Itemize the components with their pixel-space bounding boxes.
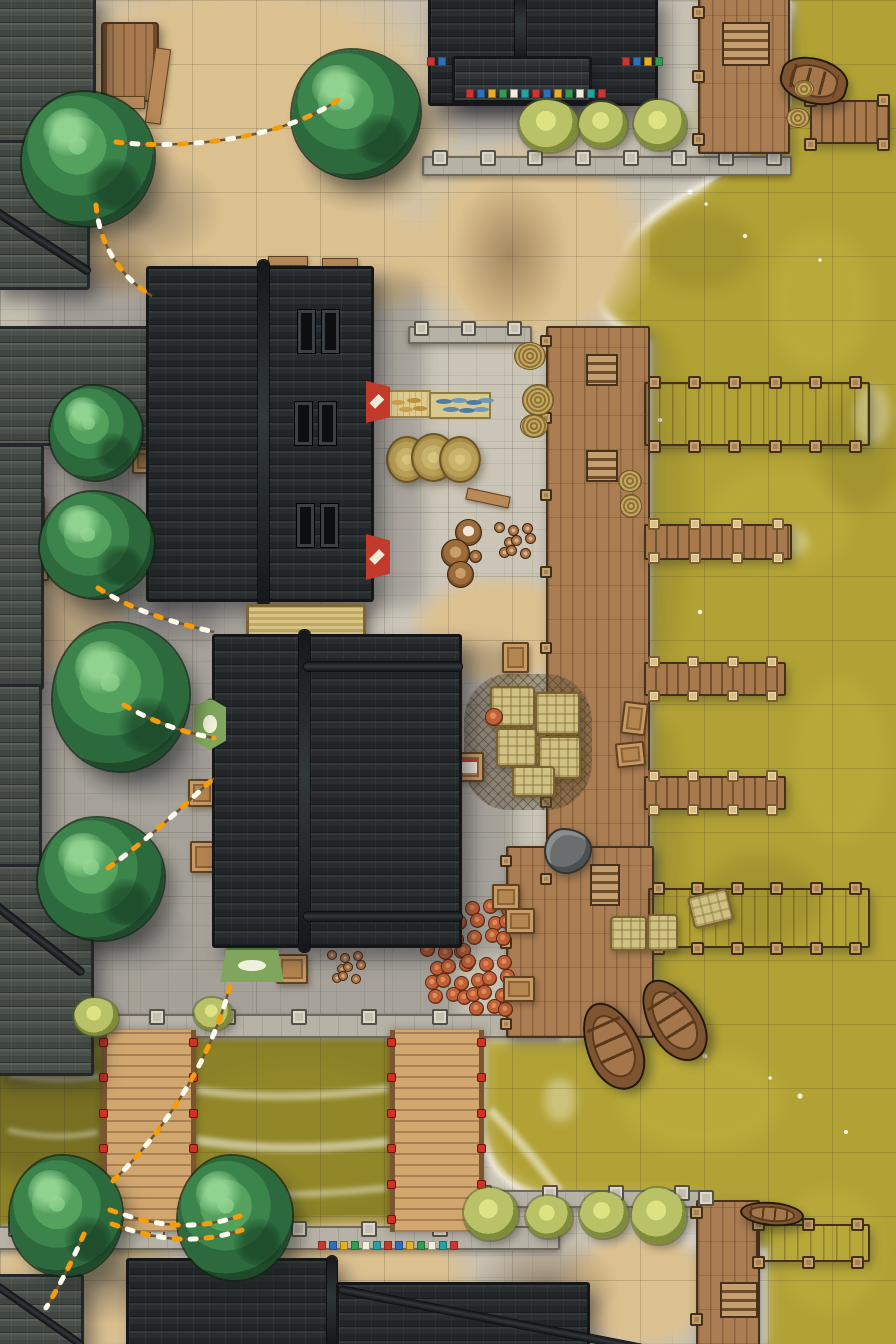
bush (519, 100, 579, 152)
tree (22, 92, 154, 226)
post (727, 804, 739, 816)
flag (587, 89, 595, 98)
post (802, 1256, 815, 1269)
hay-bale (439, 436, 481, 483)
post (766, 656, 778, 668)
pottery (423, 944, 467, 1010)
post (671, 150, 687, 166)
crate (502, 642, 529, 673)
post (770, 882, 783, 895)
flag (521, 89, 529, 98)
dock-posts (804, 138, 890, 151)
flag (598, 89, 606, 98)
red-awning (366, 381, 390, 423)
post (648, 804, 660, 816)
post (802, 1218, 815, 1231)
log (338, 971, 348, 981)
flag (554, 89, 562, 98)
post (387, 1109, 396, 1118)
flag (427, 57, 435, 66)
post (769, 376, 782, 389)
festival-flags (622, 56, 666, 66)
post (810, 942, 823, 955)
clay-pot (485, 708, 503, 726)
wood-plank (268, 256, 308, 266)
roof-hatch (322, 310, 339, 353)
flag (395, 1241, 403, 1250)
dock-stairs (586, 354, 618, 386)
log (520, 548, 531, 559)
post (692, 6, 705, 19)
roof-ridge (304, 662, 462, 671)
post (527, 150, 543, 166)
battle-map (0, 0, 896, 1344)
flag (406, 1241, 414, 1250)
post (688, 440, 701, 453)
post (291, 1221, 307, 1237)
bridge-posts (387, 1038, 396, 1224)
post (387, 1215, 396, 1224)
post (480, 150, 496, 166)
dock-stairs (590, 864, 620, 906)
flag (351, 1241, 359, 1250)
goods-bale (647, 914, 678, 951)
dock-posts (648, 440, 862, 453)
pot (498, 1002, 513, 1017)
post (477, 1144, 486, 1153)
pot (461, 954, 476, 969)
roof-hatch (298, 310, 315, 353)
post (361, 1221, 377, 1237)
post (414, 321, 429, 336)
dock-posts (690, 1206, 703, 1326)
flag (532, 89, 540, 98)
post (189, 1038, 198, 1047)
flag (438, 57, 446, 66)
stone-post (698, 1190, 714, 1206)
flag (362, 1241, 370, 1250)
post (189, 1144, 198, 1153)
dock-posts (648, 804, 778, 816)
dock-posts (692, 6, 705, 146)
post (652, 882, 665, 895)
flag (644, 57, 652, 66)
boardwalk (546, 326, 650, 894)
post (648, 656, 660, 668)
flag (488, 89, 496, 98)
pot (441, 959, 456, 974)
flag (477, 89, 485, 98)
post (477, 1109, 486, 1118)
roof-hatch (297, 504, 314, 547)
bush (579, 102, 627, 148)
flag (340, 1241, 348, 1250)
post (849, 882, 862, 895)
green-awning (194, 698, 226, 750)
pier (644, 382, 870, 446)
bush (634, 100, 686, 150)
log (494, 522, 505, 533)
post (687, 690, 699, 702)
festival-flags (318, 1240, 470, 1251)
post (387, 1073, 396, 1082)
post (770, 942, 783, 955)
post (687, 770, 699, 782)
warehouse-roof (212, 634, 462, 948)
flag (499, 89, 507, 98)
post (728, 440, 741, 453)
log (351, 974, 361, 984)
roof-ridge (258, 260, 269, 606)
tree (178, 1156, 292, 1280)
post (648, 440, 661, 453)
post (687, 656, 699, 668)
flag (510, 89, 518, 98)
log-pile (330, 952, 366, 988)
barrel (469, 550, 482, 563)
roof-ridge (299, 630, 310, 952)
log (506, 545, 517, 556)
post (849, 376, 862, 389)
pot (479, 957, 494, 972)
log-pile (497, 524, 537, 564)
post (189, 1073, 198, 1082)
rope-coil (786, 108, 810, 128)
flag (439, 1241, 447, 1250)
rope-pile (522, 384, 554, 416)
goods-bale (512, 766, 555, 797)
post (477, 1038, 486, 1047)
tree (40, 492, 154, 598)
post (149, 1009, 165, 1025)
building-roof (0, 684, 42, 870)
bush (526, 1196, 572, 1238)
post (731, 518, 743, 530)
post (752, 1256, 765, 1269)
post (432, 1009, 448, 1025)
rope-coil (794, 80, 814, 98)
flag (373, 1241, 381, 1250)
crate (505, 908, 535, 934)
post (877, 138, 890, 151)
post (849, 440, 862, 453)
tree (53, 623, 189, 771)
building-roof (0, 444, 44, 690)
flag (543, 89, 551, 98)
festival-flags (466, 88, 612, 99)
crate (503, 976, 535, 1002)
post (387, 1144, 396, 1153)
log (525, 533, 536, 544)
flag (384, 1241, 392, 1250)
post (809, 440, 822, 453)
mooring-posts (414, 321, 522, 336)
post (575, 150, 591, 166)
post (849, 942, 862, 955)
pot (482, 971, 497, 986)
flag (633, 57, 641, 66)
dock-stairs (722, 22, 770, 66)
post (648, 552, 660, 564)
post (477, 1073, 486, 1082)
post (690, 1206, 703, 1219)
goods-bale (535, 692, 580, 735)
roof-hatch (321, 504, 338, 547)
crate (615, 741, 646, 769)
flag (655, 57, 663, 66)
post (99, 1073, 108, 1082)
post (99, 1109, 108, 1118)
goods-bale (496, 728, 537, 767)
post (727, 656, 739, 668)
bush (194, 998, 232, 1030)
water-sparkles (658, 108, 848, 1134)
post (691, 942, 704, 955)
post (772, 552, 784, 564)
pot (428, 989, 443, 1004)
post (540, 642, 552, 654)
roof-hatch (319, 402, 336, 445)
pot (436, 973, 451, 988)
post (648, 770, 660, 782)
post (727, 770, 739, 782)
dock-posts (648, 518, 784, 530)
post (766, 690, 778, 702)
market-mat (383, 390, 431, 418)
post (692, 70, 705, 83)
bush (74, 998, 118, 1036)
goods-bale (610, 916, 647, 951)
post (99, 1038, 108, 1047)
post (689, 518, 701, 530)
pot (467, 930, 482, 945)
post (731, 942, 744, 955)
roof-ridge (304, 912, 462, 921)
post (507, 321, 522, 336)
bush (464, 1188, 518, 1240)
post (432, 150, 448, 166)
post (500, 855, 512, 867)
post (500, 1018, 512, 1030)
post (769, 440, 782, 453)
post (804, 138, 817, 151)
post (361, 1009, 377, 1025)
post (689, 552, 701, 564)
pier (648, 888, 870, 948)
post (727, 690, 739, 702)
crate (620, 701, 649, 737)
bush (632, 1188, 686, 1244)
post (692, 133, 705, 146)
flag (329, 1241, 337, 1250)
post (540, 335, 552, 347)
post (728, 376, 741, 389)
flag (428, 1241, 436, 1250)
post (851, 1218, 864, 1231)
dock-posts (648, 656, 778, 668)
dock-posts (648, 376, 862, 389)
dock-posts (648, 552, 784, 564)
post (540, 873, 552, 885)
post (766, 770, 778, 782)
dock-stairs (720, 1282, 758, 1318)
post (99, 1144, 108, 1153)
post (809, 376, 822, 389)
post (690, 1313, 703, 1326)
tree (292, 50, 420, 178)
green-awning (220, 948, 284, 982)
crate (492, 884, 520, 910)
post (851, 1256, 864, 1269)
bush (580, 1192, 628, 1238)
post (648, 690, 660, 702)
red-awning (366, 534, 390, 580)
roof-hatch (295, 402, 312, 445)
tree (50, 386, 142, 480)
post (772, 518, 784, 530)
barrel (447, 561, 474, 588)
rope-coil (618, 470, 642, 492)
post (291, 1009, 307, 1025)
flag (576, 89, 584, 98)
post (648, 376, 661, 389)
post (623, 150, 639, 166)
post (688, 376, 701, 389)
dock-posts (652, 942, 862, 955)
wood-plank (465, 488, 511, 509)
tree (10, 1156, 122, 1276)
pot (497, 955, 512, 970)
roof-ridge (515, 0, 526, 62)
post (877, 94, 890, 107)
dirt-streaks (450, 175, 570, 335)
flag (466, 89, 474, 98)
post (461, 321, 476, 336)
flag (565, 89, 573, 98)
pot (469, 1001, 484, 1016)
post (387, 1038, 396, 1047)
dock-posts (648, 770, 778, 782)
post (766, 804, 778, 816)
tree (38, 818, 164, 940)
post (731, 882, 744, 895)
post (540, 489, 552, 501)
flag (318, 1241, 326, 1250)
dock-stairs (586, 450, 618, 482)
flag (622, 57, 630, 66)
pot (470, 913, 485, 928)
dock-posts (652, 882, 862, 895)
log (327, 950, 337, 960)
post (387, 1180, 396, 1189)
log (356, 960, 366, 970)
dock-posts (648, 690, 778, 702)
post (189, 1109, 198, 1118)
festival-flags (427, 56, 451, 66)
post (687, 804, 699, 816)
post (648, 518, 660, 530)
post (540, 566, 552, 578)
rope-pile (520, 414, 548, 438)
rope-coil (620, 494, 642, 518)
dock-posts (752, 1256, 864, 1269)
rope-pile (514, 342, 546, 370)
post (810, 882, 823, 895)
post (731, 552, 743, 564)
pot (477, 985, 492, 1000)
flag (450, 1241, 458, 1250)
fish-table (429, 392, 491, 419)
flag (417, 1241, 425, 1250)
